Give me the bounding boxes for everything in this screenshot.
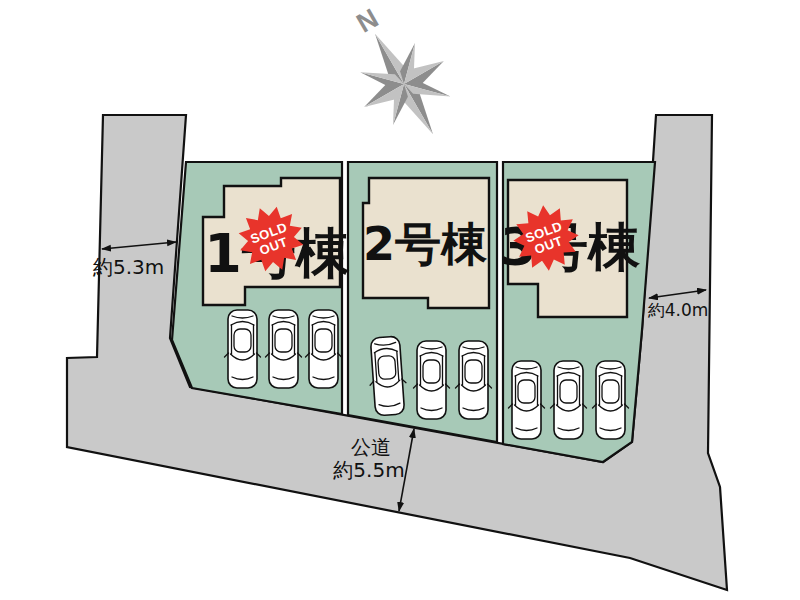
compass-north-label: N — [352, 3, 384, 39]
car — [414, 341, 450, 419]
car — [551, 361, 587, 439]
building-2-label: 2号棟 — [363, 217, 488, 271]
car — [306, 310, 342, 388]
car — [509, 361, 545, 439]
car — [225, 310, 261, 388]
parking-lot-2 — [367, 336, 492, 419]
dimension-south-label: 約5.5m — [332, 458, 404, 482]
south-road-type-label: 公道 — [351, 435, 391, 459]
dimension-east-label: 約4.0m — [648, 300, 709, 320]
parking-lot-3 — [509, 361, 629, 439]
parking-lot-1 — [225, 310, 342, 388]
compass-rose: N — [320, 0, 473, 157]
site-plan-canvas: 1号棟 2号棟 3号棟 SOLD OUT SOLD OUT — [0, 0, 800, 600]
site-plan-drawing: 1号棟 2号棟 3号棟 SOLD OUT SOLD OUT — [0, 0, 800, 600]
dimension-west-label: 約5.3m — [92, 255, 164, 279]
car — [456, 341, 492, 419]
car — [266, 310, 302, 388]
car — [593, 361, 629, 439]
